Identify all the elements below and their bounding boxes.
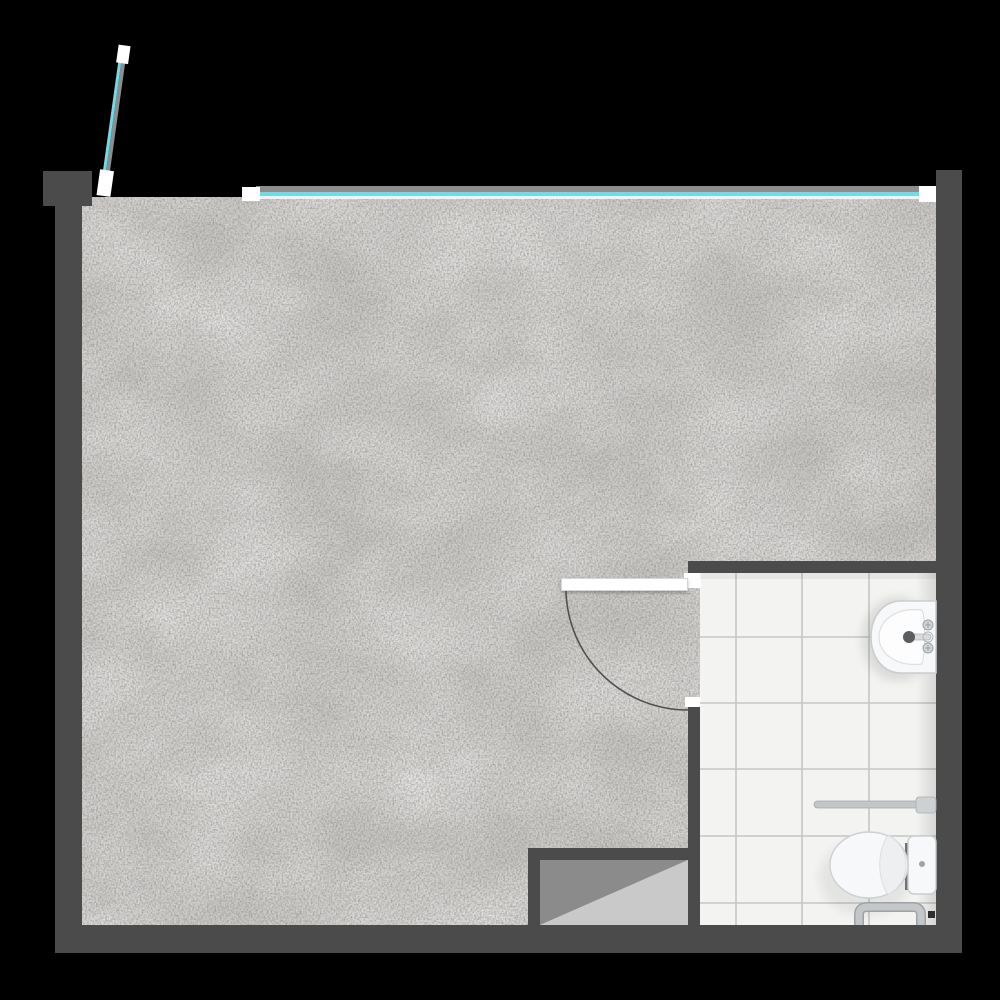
- door-jamb-bottom: [685, 697, 701, 707]
- slanted-window: [97, 44, 132, 196]
- shaft-border-left: [528, 848, 540, 925]
- shaft-border-top: [528, 848, 690, 860]
- ribbon-window-cap-left: [242, 187, 260, 201]
- bathroom-wall-partition: [688, 707, 700, 925]
- floor-plan-canvas: [0, 0, 1000, 1000]
- slanted-window-cap-bottom: [97, 169, 114, 197]
- wall-bottom: [55, 925, 962, 953]
- ribbon-window-cap-right: [919, 186, 936, 202]
- wall-left: [55, 171, 82, 953]
- slanted-window-cap-top: [116, 45, 130, 64]
- ribbon-window-sill: [256, 196, 922, 199]
- wall-right: [936, 170, 962, 953]
- door-leaf: [561, 578, 688, 591]
- bathroom-wall-top: [688, 561, 936, 573]
- bathroom-floor: [700, 573, 936, 925]
